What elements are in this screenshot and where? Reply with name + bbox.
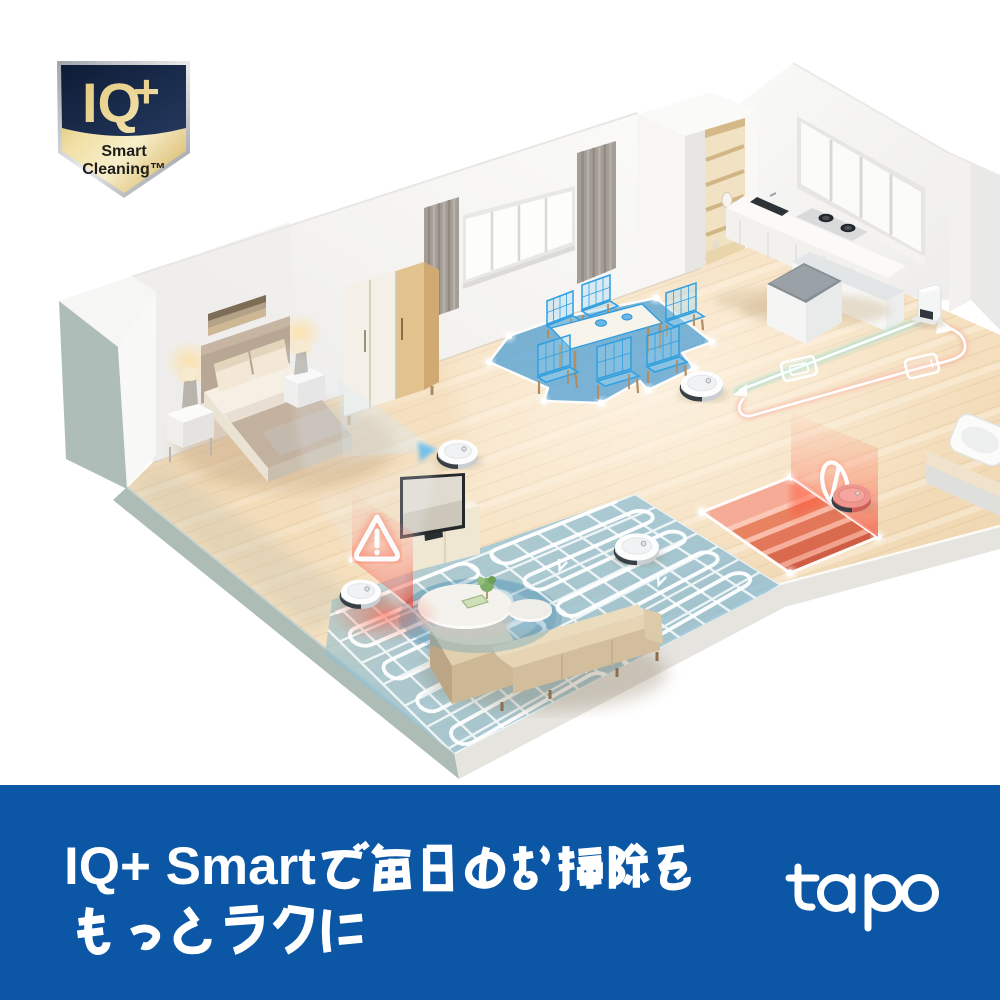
- svg-text:Cleaning™: Cleaning™: [82, 161, 166, 178]
- svg-text:IQ+ Smart: IQ+ Smart: [64, 837, 316, 896]
- svg-text:+: +: [133, 65, 160, 117]
- svg-text:Smart: Smart: [101, 143, 147, 160]
